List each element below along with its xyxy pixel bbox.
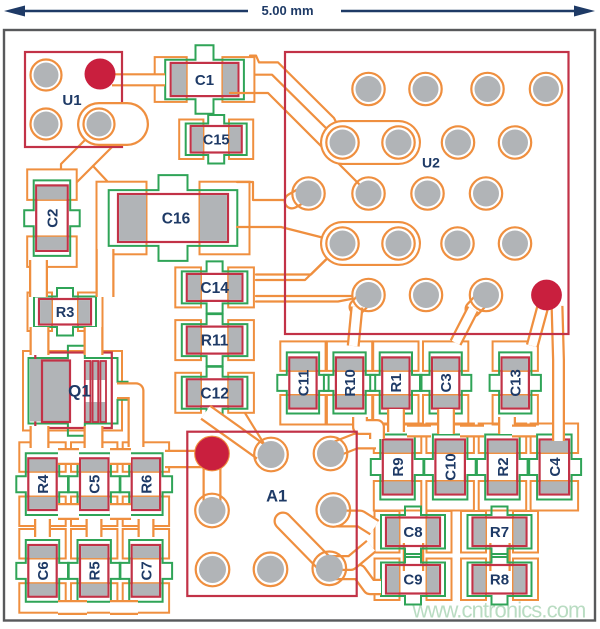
svg-text:R11: R11 — [201, 333, 229, 350]
svg-text:C13: C13 — [508, 369, 525, 397]
svg-text:C10: C10 — [443, 453, 460, 481]
svg-text:R4: R4 — [35, 474, 52, 494]
svg-text:C1: C1 — [195, 72, 214, 89]
svg-text:C8: C8 — [403, 524, 422, 541]
svg-text:U2: U2 — [422, 154, 440, 170]
svg-text:R3: R3 — [56, 305, 75, 321]
svg-text:U1: U1 — [62, 92, 81, 109]
svg-text:C5: C5 — [87, 475, 104, 494]
svg-text:C7: C7 — [138, 561, 155, 580]
svg-text:C9: C9 — [403, 572, 422, 589]
svg-text:R5: R5 — [87, 561, 104, 580]
svg-text:C14: C14 — [200, 280, 229, 297]
svg-text:R2: R2 — [495, 457, 512, 476]
svg-text:C12: C12 — [200, 385, 228, 402]
svg-text:5.00 mm: 5.00 mm — [261, 3, 313, 18]
svg-text:A1: A1 — [266, 488, 287, 506]
svg-text:C2: C2 — [44, 209, 61, 228]
svg-text:R9: R9 — [390, 457, 407, 476]
svg-text:C6: C6 — [35, 561, 52, 580]
svg-text:R7: R7 — [490, 524, 509, 541]
svg-text:R6: R6 — [138, 475, 155, 494]
svg-text:R8: R8 — [490, 572, 509, 589]
svg-text:Q1: Q1 — [68, 382, 91, 401]
svg-text:C15: C15 — [203, 133, 230, 149]
svg-text:R10: R10 — [342, 369, 359, 397]
svg-text:C16: C16 — [162, 211, 191, 228]
svg-text:C4: C4 — [547, 457, 564, 477]
svg-text:R1: R1 — [388, 373, 405, 392]
svg-text:www.cntronics.com: www.cntronics.com — [412, 598, 586, 623]
svg-text:C3: C3 — [438, 373, 455, 392]
svg-text:C11: C11 — [295, 370, 312, 397]
